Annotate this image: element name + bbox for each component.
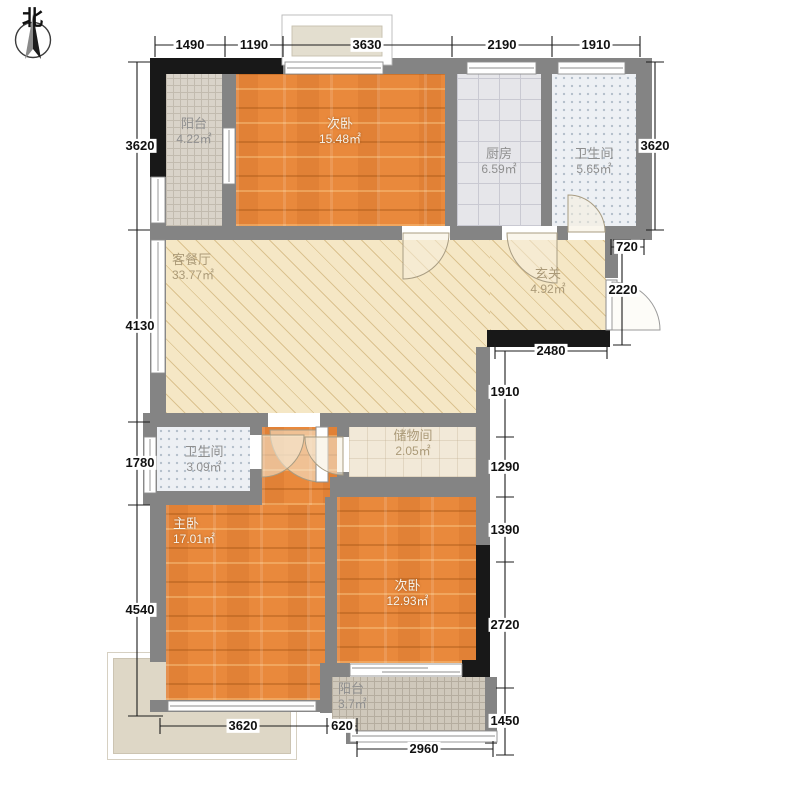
balcony-slider-window bbox=[350, 664, 462, 676]
dim-bottom-620: 620 bbox=[329, 719, 355, 733]
dim-right-2720: 2720 bbox=[489, 618, 522, 632]
dim-top-1910: 1910 bbox=[580, 38, 613, 52]
floor-storage bbox=[349, 427, 476, 477]
dim-bottom-2960: 2960 bbox=[408, 742, 441, 756]
floor-bedroom-bottom bbox=[337, 497, 476, 663]
dim-right-2480: 2480 bbox=[535, 344, 568, 358]
dim-right-2220: 2220 bbox=[607, 283, 640, 297]
dim-right-1910: 1910 bbox=[489, 385, 522, 399]
floorplan-canvas: 北 bbox=[0, 0, 800, 800]
dim-top-1490: 1490 bbox=[174, 38, 207, 52]
dim-left-4130: 4130 bbox=[124, 319, 157, 333]
floor-bath-small bbox=[157, 427, 250, 491]
dim-left-1780: 1780 bbox=[124, 456, 157, 470]
dim-right-3620: 3620 bbox=[639, 139, 672, 153]
dim-right-1290: 1290 bbox=[489, 460, 522, 474]
dim-right-720: 720 bbox=[614, 240, 640, 254]
dim-right-1450: 1450 bbox=[489, 714, 522, 728]
dim-bottom-3620: 3620 bbox=[227, 719, 260, 733]
floor-kitchen bbox=[457, 74, 541, 226]
dim-left-4540: 4540 bbox=[124, 603, 157, 617]
floor-master-nook bbox=[262, 427, 337, 505]
dim-left-3620: 3620 bbox=[124, 139, 157, 153]
floor-bath-top bbox=[552, 74, 636, 226]
compass-north-label: 北 bbox=[22, 2, 43, 32]
floor-entry bbox=[490, 240, 606, 330]
dim-top-1190: 1190 bbox=[238, 38, 270, 52]
floor-living bbox=[166, 240, 490, 413]
floor-bedroom-top bbox=[236, 74, 445, 226]
floor-balcony-bottom bbox=[332, 677, 485, 731]
floor-balcony-top bbox=[166, 74, 222, 226]
dim-right-1390: 1390 bbox=[489, 523, 522, 537]
floor-master bbox=[166, 505, 325, 700]
dim-top-3630: 3630 bbox=[351, 38, 384, 52]
dim-top-2190: 2190 bbox=[486, 38, 519, 52]
